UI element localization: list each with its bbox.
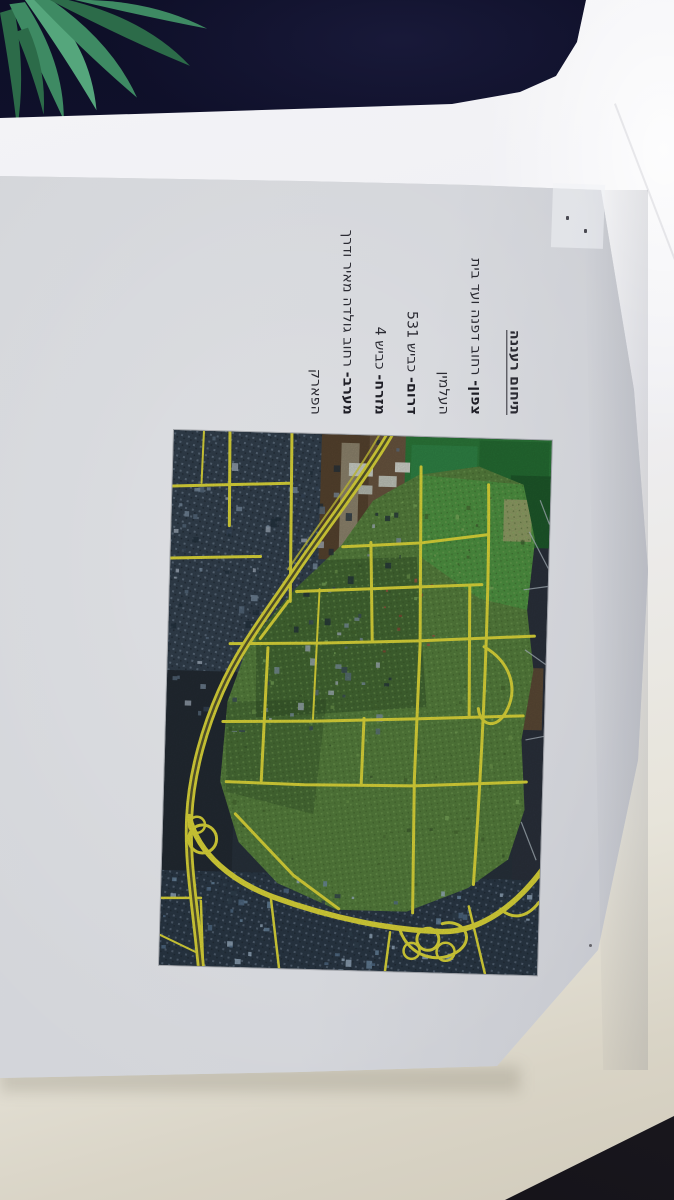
photo-frame: תיחום רעננה צפון- רחוב דפנה ועד ביתהעלמי… bbox=[0, 0, 674, 1200]
staple-patch bbox=[551, 183, 605, 249]
boundary-line-6: הפארק bbox=[299, 230, 331, 415]
boundary-text: כביש 4 bbox=[371, 327, 387, 375]
boundary-line-5: מערב- רחוב גולדה מאיר ודרך bbox=[331, 230, 363, 415]
boundary-line-4: מזרח- כביש 4 bbox=[363, 230, 395, 415]
ink-speck bbox=[589, 944, 592, 947]
direction-label: דרום- bbox=[403, 377, 419, 415]
map-grain bbox=[159, 430, 552, 975]
boundary-text: רחוב גולדה מאיר ודרך bbox=[339, 230, 355, 372]
direction-label: מערב- bbox=[339, 372, 355, 415]
staple-mark bbox=[566, 216, 569, 220]
document-text-block: תיחום רעננה צפון- רחוב דפנה ועד ביתהעלמי… bbox=[299, 230, 530, 415]
boundary-line-1: צפון- רחוב דפנה ועד בית bbox=[459, 230, 491, 415]
boundary-text: הפארק bbox=[307, 369, 323, 415]
boundary-line-3: דרום- כביש 531 bbox=[395, 230, 427, 415]
direction-label: צפון- bbox=[467, 380, 483, 415]
boundary-lines: צפון- רחוב דפנה ועד ביתהעלמיןדרום- כביש … bbox=[299, 230, 491, 415]
boundary-text: כביש 531 bbox=[403, 311, 419, 377]
boundary-line-2: העלמין bbox=[427, 230, 459, 415]
staple-mark bbox=[584, 229, 587, 233]
boundary-text: רחוב דפנה ועד בית bbox=[467, 258, 483, 380]
document-title: תיחום רעננה bbox=[498, 230, 530, 415]
boundary-text: העלמין bbox=[435, 371, 451, 415]
aerial-map bbox=[159, 430, 552, 975]
direction-label: מזרח- bbox=[371, 374, 387, 415]
